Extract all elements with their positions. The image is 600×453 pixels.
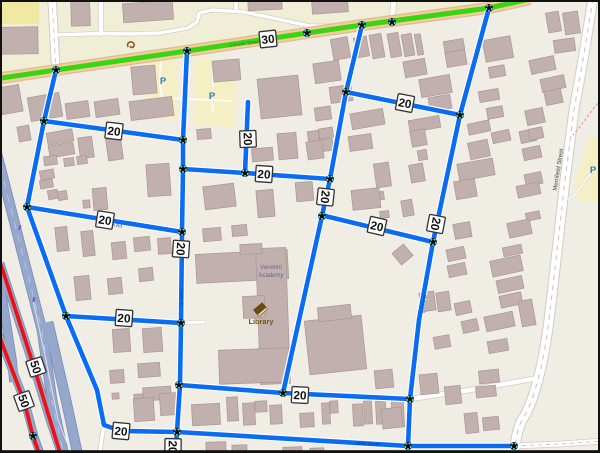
svg-text:20: 20 (97, 212, 113, 228)
svg-text:20: 20 (107, 124, 122, 140)
svg-text:20: 20 (293, 388, 307, 403)
svg-text:20: 20 (240, 132, 254, 146)
svg-text:Academy: Academy (258, 273, 283, 279)
svg-text:20: 20 (117, 311, 132, 326)
svg-text:20: 20 (114, 424, 129, 439)
svg-text:Venerini: Venerini (260, 265, 282, 271)
svg-text:30: 30 (261, 32, 276, 47)
svg-text:20: 20 (257, 167, 272, 182)
svg-text:Silver Street: Silver Street (355, 441, 380, 447)
svg-text:P: P (209, 91, 216, 102)
svg-text:20: 20 (318, 190, 333, 205)
svg-text:20: 20 (173, 242, 188, 257)
svg-text:P: P (590, 165, 597, 176)
svg-text:Library: Library (248, 317, 274, 326)
svg-text:Sever St: Sever St (180, 289, 185, 307)
svg-text:P: P (160, 76, 167, 87)
